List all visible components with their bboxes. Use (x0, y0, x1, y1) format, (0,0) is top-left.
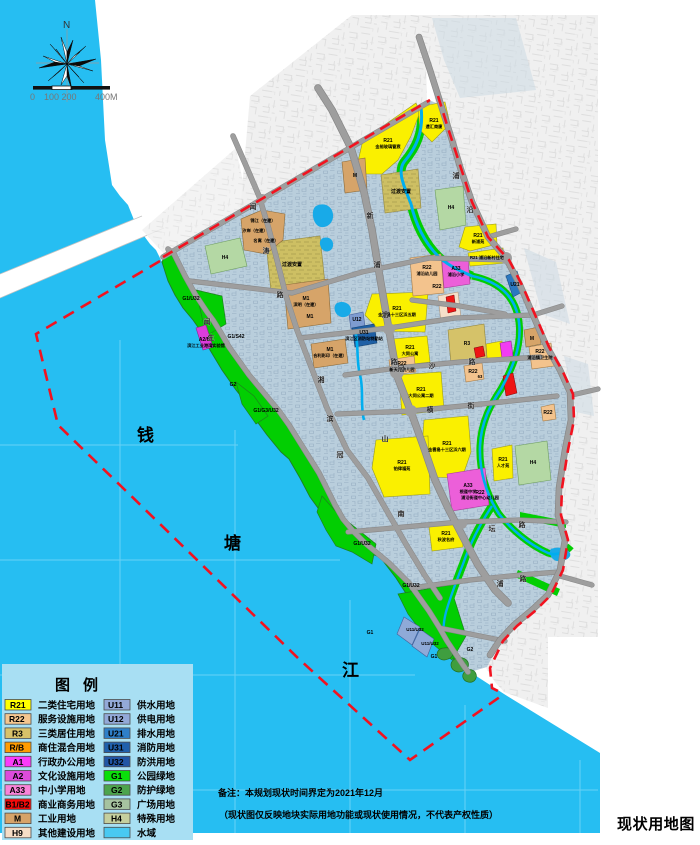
svg-text:R3: R3 (464, 341, 471, 347)
svg-text:滨江工业港湾实验馆: 滨江工业港湾实验馆 (187, 342, 226, 349)
svg-text:U12: U12 (108, 714, 124, 724)
svg-text:现状用地图: 现状用地图 (617, 815, 695, 833)
svg-text:滨江区消防站特勤站: 滨江区消防站特勤站 (345, 335, 384, 342)
svg-text:G1: G1 (111, 771, 123, 781)
svg-text:秋波名府: 秋波名府 (438, 536, 456, 543)
svg-text:H4: H4 (222, 255, 229, 261)
svg-text:浦沿镇卫生院: 浦沿镇卫生院 (527, 354, 553, 361)
svg-text:街: 街 (467, 401, 475, 410)
svg-text:金裕玻璃管宸: 金裕玻璃管宸 (374, 143, 401, 150)
svg-text:大同公寓二期: 大同公寓二期 (408, 392, 433, 399)
svg-text:M1: M1 (307, 314, 314, 320)
svg-text:坛: 坛 (489, 524, 496, 533)
svg-text:铂律福苑: 铂律福苑 (394, 465, 412, 472)
svg-text:浦: 浦 (497, 579, 504, 588)
svg-text:中小学用地: 中小学用地 (38, 785, 86, 797)
svg-text:浦: 浦 (374, 260, 381, 269)
svg-text:闻: 闻 (204, 317, 211, 326)
svg-text:公园绿地: 公园绿地 (137, 771, 176, 783)
svg-text:遠汇商廈: 遠汇商廈 (426, 123, 444, 130)
svg-text:商住混合用地: 商住混合用地 (38, 742, 96, 754)
svg-text:江: 江 (342, 661, 359, 680)
svg-text:U31: U31 (108, 743, 124, 753)
svg-text:G1/S42: G1/S42 (228, 334, 245, 340)
svg-text:汐岸（在建）: 汐岸（在建） (242, 227, 267, 234)
svg-text:供水用地: 供水用地 (136, 700, 176, 712)
svg-text:路: 路 (277, 290, 285, 299)
svg-text:100 200: 100 200 (44, 92, 77, 102)
svg-text:A1: A1 (13, 757, 24, 767)
svg-text:图例: 图例 (55, 676, 111, 694)
svg-text:U11/U32: U11/U32 (406, 627, 424, 632)
svg-text:H4: H4 (530, 460, 537, 466)
svg-text:G1/U32: G1/U32 (402, 583, 419, 589)
svg-text:横: 横 (427, 405, 434, 414)
svg-text:滨明（在建）: 滨明（在建） (293, 301, 318, 308)
svg-text:R22: R22 (468, 369, 477, 375)
svg-text:H9: H9 (12, 828, 23, 838)
svg-text:R22: R22 (9, 714, 25, 724)
svg-text:涛: 涛 (263, 246, 270, 255)
svg-text:二类住宅用地: 二类住宅用地 (38, 700, 96, 712)
svg-text:U21: U21 (108, 728, 124, 738)
svg-text:新: 新 (367, 211, 374, 220)
svg-text:供电用地: 供电用地 (136, 714, 176, 726)
svg-text:其他建设用地: 其他建设用地 (38, 827, 96, 839)
svg-text:大同公寓: 大同公寓 (402, 350, 419, 357)
svg-text:浦: 浦 (453, 171, 460, 180)
svg-text:滨: 滨 (327, 414, 334, 423)
svg-text:R22: R22 (432, 284, 441, 290)
svg-text:新浦苑: 新浦苑 (472, 238, 485, 245)
svg-text:R22: R22 (543, 410, 552, 416)
svg-text:N: N (63, 20, 70, 31)
svg-text:名寓（在建）: 名寓（在建） (253, 237, 278, 244)
svg-text:G2: G2 (467, 647, 474, 653)
svg-text:R3: R3 (12, 728, 23, 738)
svg-text:南: 南 (398, 509, 405, 518)
svg-text:浦沿幼儿园: 浦沿幼儿园 (417, 270, 438, 277)
svg-text:U11/U32: U11/U32 (421, 641, 439, 646)
svg-text:U11: U11 (108, 700, 123, 710)
svg-text:G1: G1 (431, 654, 438, 660)
svg-text:G1: G1 (367, 630, 374, 636)
svg-text:工业用地: 工业用地 (38, 813, 77, 825)
svg-text:R21 浦沿新村住宅: R21 浦沿新村住宅 (470, 254, 505, 261)
svg-text:浦沿街道中心幼儿园: 浦沿街道中心幼儿园 (461, 494, 499, 501)
svg-text:路: 路 (520, 574, 528, 583)
svg-text:R/B: R/B (10, 743, 25, 753)
svg-text:塘: 塘 (224, 533, 241, 553)
svg-text:服务设施用地: 服务设施用地 (38, 714, 96, 726)
svg-text:路: 路 (469, 357, 477, 366)
svg-text:0: 0 (30, 92, 35, 102)
svg-text:U21: U21 (510, 282, 519, 288)
svg-text:备注：本规划现状时间界定为2021年12月: 备注：本规划现状时间界定为2021年12月 (217, 787, 383, 798)
svg-text:M: M (14, 814, 21, 824)
svg-text:合利彩印（在建）: 合利彩印（在建） (313, 352, 347, 359)
svg-text:生: 生 (208, 333, 215, 342)
svg-text:H4: H4 (448, 205, 455, 211)
svg-text:G1/U32: G1/U32 (353, 541, 370, 547)
svg-text:山: 山 (382, 434, 389, 443)
svg-text:M: M (530, 336, 534, 342)
svg-text:G2: G2 (111, 785, 123, 795)
svg-text:冠: 冠 (337, 450, 344, 459)
svg-text:M: M (353, 173, 357, 179)
svg-text:湘: 湘 (318, 375, 325, 384)
svg-text:人才苑: 人才苑 (496, 462, 510, 469)
svg-text:R21: R21 (10, 700, 26, 710)
svg-text:A2: A2 (13, 771, 24, 781)
svg-text:商业商务用地: 商业商务用地 (38, 799, 96, 811)
svg-text:广场用地: 广场用地 (137, 799, 176, 811)
svg-text:路: 路 (391, 357, 399, 366)
svg-text:水域: 水域 (137, 827, 157, 839)
svg-text:H4: H4 (111, 814, 122, 824)
svg-text:锦江（在建）: 锦江（在建） (250, 217, 275, 224)
svg-text:防护绿地: 防护绿地 (137, 785, 176, 797)
svg-text:特殊用地: 特殊用地 (137, 813, 176, 825)
svg-text:钱: 钱 (137, 425, 154, 445)
svg-text:G1/G3/U32: G1/G3/U32 (253, 408, 279, 414)
svg-text:63: 63 (478, 374, 483, 379)
svg-text:闻: 闻 (250, 202, 257, 211)
svg-text:沿: 沿 (382, 310, 389, 319)
svg-text:冠: 冠 (398, 364, 405, 373)
svg-text:U32: U32 (108, 757, 124, 767)
svg-text:防洪用地: 防洪用地 (137, 756, 176, 768)
svg-text:沿: 沿 (467, 205, 474, 214)
svg-text:A33: A33 (10, 785, 26, 795)
svg-text:U12: U12 (352, 317, 361, 323)
svg-text:沙: 沙 (429, 362, 436, 370)
svg-text:过渡安置: 过渡安置 (391, 188, 411, 195)
svg-text:浦沿小学: 浦沿小学 (448, 271, 466, 278)
svg-text:路: 路 (519, 520, 527, 529)
svg-text:（现状图仅反映地块实际用地功能或现状使用情况，不代表产权性质: （现状图仅反映地块实际用地功能或现状使用情况，不代表产权性质） (219, 809, 498, 820)
svg-text:消防用地: 消防用地 (137, 742, 176, 754)
svg-text:B1/B2: B1/B2 (6, 799, 30, 809)
svg-text:行政办公用地: 行政办公用地 (37, 756, 96, 768)
svg-text:400M: 400M (95, 92, 118, 102)
svg-text:排水用地: 排水用地 (137, 728, 176, 740)
svg-text:文化设施用地: 文化设施用地 (37, 771, 96, 783)
svg-text:G2: G2 (230, 382, 237, 388)
svg-text:过渡安置: 过渡安置 (282, 261, 302, 268)
svg-text:三类居住用地: 三类居住用地 (38, 728, 96, 740)
svg-text:G1/U32: G1/U32 (182, 296, 199, 302)
svg-text:G3: G3 (111, 799, 123, 809)
svg-text:金雲島十三区浜六期: 金雲島十三区浜六期 (427, 446, 466, 453)
